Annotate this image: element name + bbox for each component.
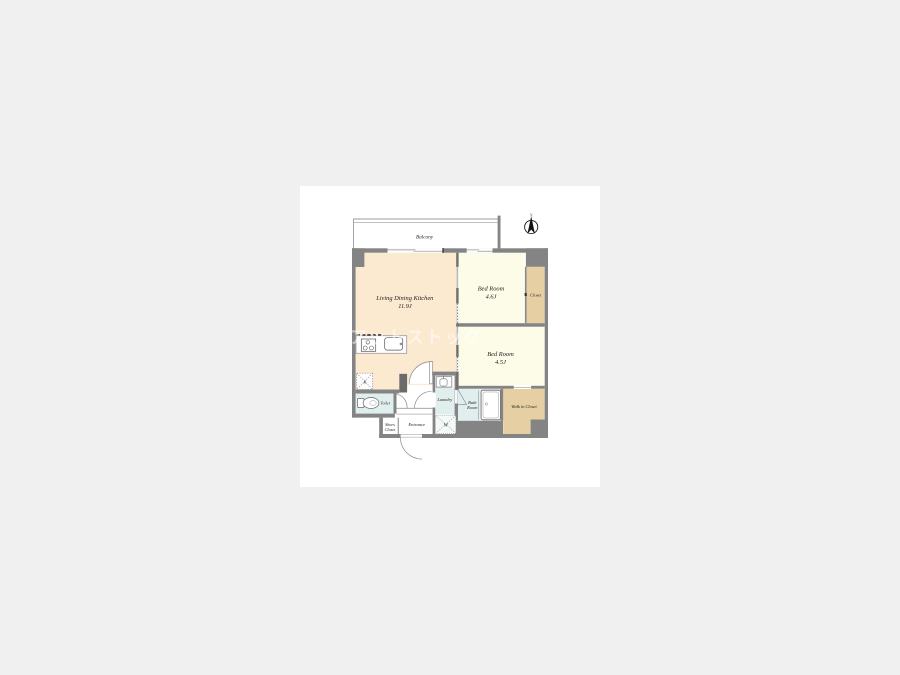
svg-text:Bed Room: Bed Room — [487, 351, 514, 358]
svg-text:R: R — [362, 380, 366, 385]
svg-text:Laundry: Laundry — [436, 397, 452, 402]
svg-text:Living Dining Kitchen: Living Dining Kitchen — [375, 295, 433, 302]
svg-text:Room: Room — [466, 405, 477, 410]
svg-text:N: N — [530, 214, 533, 218]
svg-text:11.9J: 11.9J — [398, 303, 413, 310]
svg-text:4.6J: 4.6J — [486, 293, 498, 300]
svg-text:4.5J: 4.5J — [495, 359, 507, 366]
svg-text:Balcony: Balcony — [416, 235, 434, 241]
svg-text:Entrance: Entrance — [407, 422, 425, 427]
svg-text:Toilet: Toilet — [381, 400, 391, 405]
svg-text:Bed Room: Bed Room — [478, 286, 505, 293]
svg-text:Closet: Closet — [385, 427, 397, 432]
svg-text:Closet: Closet — [530, 292, 542, 297]
svg-text:Walk in Closet: Walk in Closet — [511, 404, 537, 409]
svg-text:アットストック: アットストック — [350, 328, 483, 347]
